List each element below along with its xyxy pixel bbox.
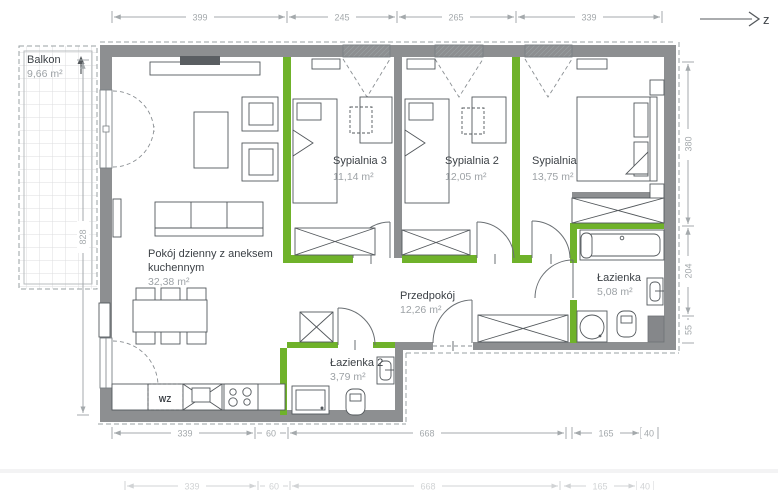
dim-left-1: 828 [78,229,88,244]
bedroom1-name: Sypialnia [532,155,578,167]
washing-machine [577,311,607,342]
bedroom2-area: 12,05 m² [445,171,487,183]
dim-right-3: 55 [684,325,694,335]
dim-bottom-5: 40 [644,429,654,439]
sink [647,278,664,305]
furniture-bedroom1 [572,59,664,223]
tv-icon [180,56,220,65]
desk [360,97,392,143]
toilet [346,389,365,415]
wardrobe [402,230,470,255]
bathroom2-name: Łazienka 2 [330,357,383,369]
bathtub [580,230,664,260]
living-area: 32,38 m² [148,276,190,288]
bedroom3-window [343,45,390,97]
desk [472,97,506,143]
dim-right-2: 204 [684,263,694,278]
dim-bottom-4: 165 [598,429,613,439]
dimensions-bottom: 339 60 668 165 40 [112,427,658,439]
stove [224,384,258,410]
bedroom2-name: Sypialnia 2 [445,155,499,167]
dim-bottom-1: 339 [177,429,192,439]
dim-bottom-3: 668 [419,429,434,439]
dining-set [133,288,207,344]
bedroom2-window [435,45,483,97]
sofa [155,202,263,236]
hall-wardrobe [478,315,568,342]
bathroom-name: Łazienka [597,272,642,284]
compass-label: z [763,12,770,27]
radiator [407,59,435,69]
wardrobe [295,228,375,255]
hall-name: Przedpokój [400,290,455,302]
pillow [297,103,321,120]
floor-plan-canvas: 399 245 265 339 828 380 204 55 [0,0,778,502]
kitchen-window [100,338,158,388]
bedroom1-door [532,221,570,264]
bathroom-area: 5,08 m² [597,286,633,298]
crop-edge [0,490,778,502]
dim-top-2: 245 [334,13,349,23]
shower [292,386,329,414]
bathroom-door [535,260,573,298]
radiator [577,59,607,69]
dimensions-top: 399 245 265 339 [112,11,662,23]
dim-right-1: 380 [684,136,694,151]
bedroom3-area: 11,14 m² [333,171,374,183]
balcony-name: Balkon [27,54,61,66]
dim-top-4: 339 [581,13,596,23]
coffee-table [194,112,228,168]
kitchen-sink [183,384,222,410]
bathroom2-area: 3,79 m² [330,371,366,383]
balcony-door-window [100,90,154,168]
radiator [113,199,121,237]
bedroom1-window [525,45,572,97]
pillow [409,103,433,120]
kitchen-counter [112,384,285,410]
radiator [312,59,340,69]
kitchen-cabinet-label: WZ [159,395,172,404]
dim-top-3: 265 [448,13,463,23]
duct-shaft [648,316,664,342]
nightstand [650,80,664,95]
hall-area: 12,26 m² [400,304,442,316]
floor-plan-drawing: 399 245 265 339 828 380 204 55 [0,0,778,502]
radiator [99,303,110,337]
bedroom1-area: 13,75 m² [532,171,574,183]
dim-top-1: 399 [192,13,207,23]
dim-bottom-2: 60 [266,429,276,439]
nightstand [650,184,664,199]
pillow [634,103,648,137]
compass: z [700,12,770,27]
dimensions-right: 380 204 55 [682,62,694,343]
living-name-line2: kuchennym [148,262,204,274]
toilet [617,311,636,337]
bathroom2-door [338,308,375,350]
bedroom2-door [477,222,514,264]
bedroom3-name: Sypialnia 3 [333,155,387,167]
wardrobe [572,198,664,223]
page-separator [0,469,778,473]
furniture-hall [478,315,568,342]
living-name-line1: Pokój dzienny z aneksem [148,248,273,260]
hall-wardrobe-left [300,312,333,342]
balcony-area: 9,66 m² [27,68,63,80]
dimensions-bottom-faded: 339 60 668 165 40 [125,481,653,492]
